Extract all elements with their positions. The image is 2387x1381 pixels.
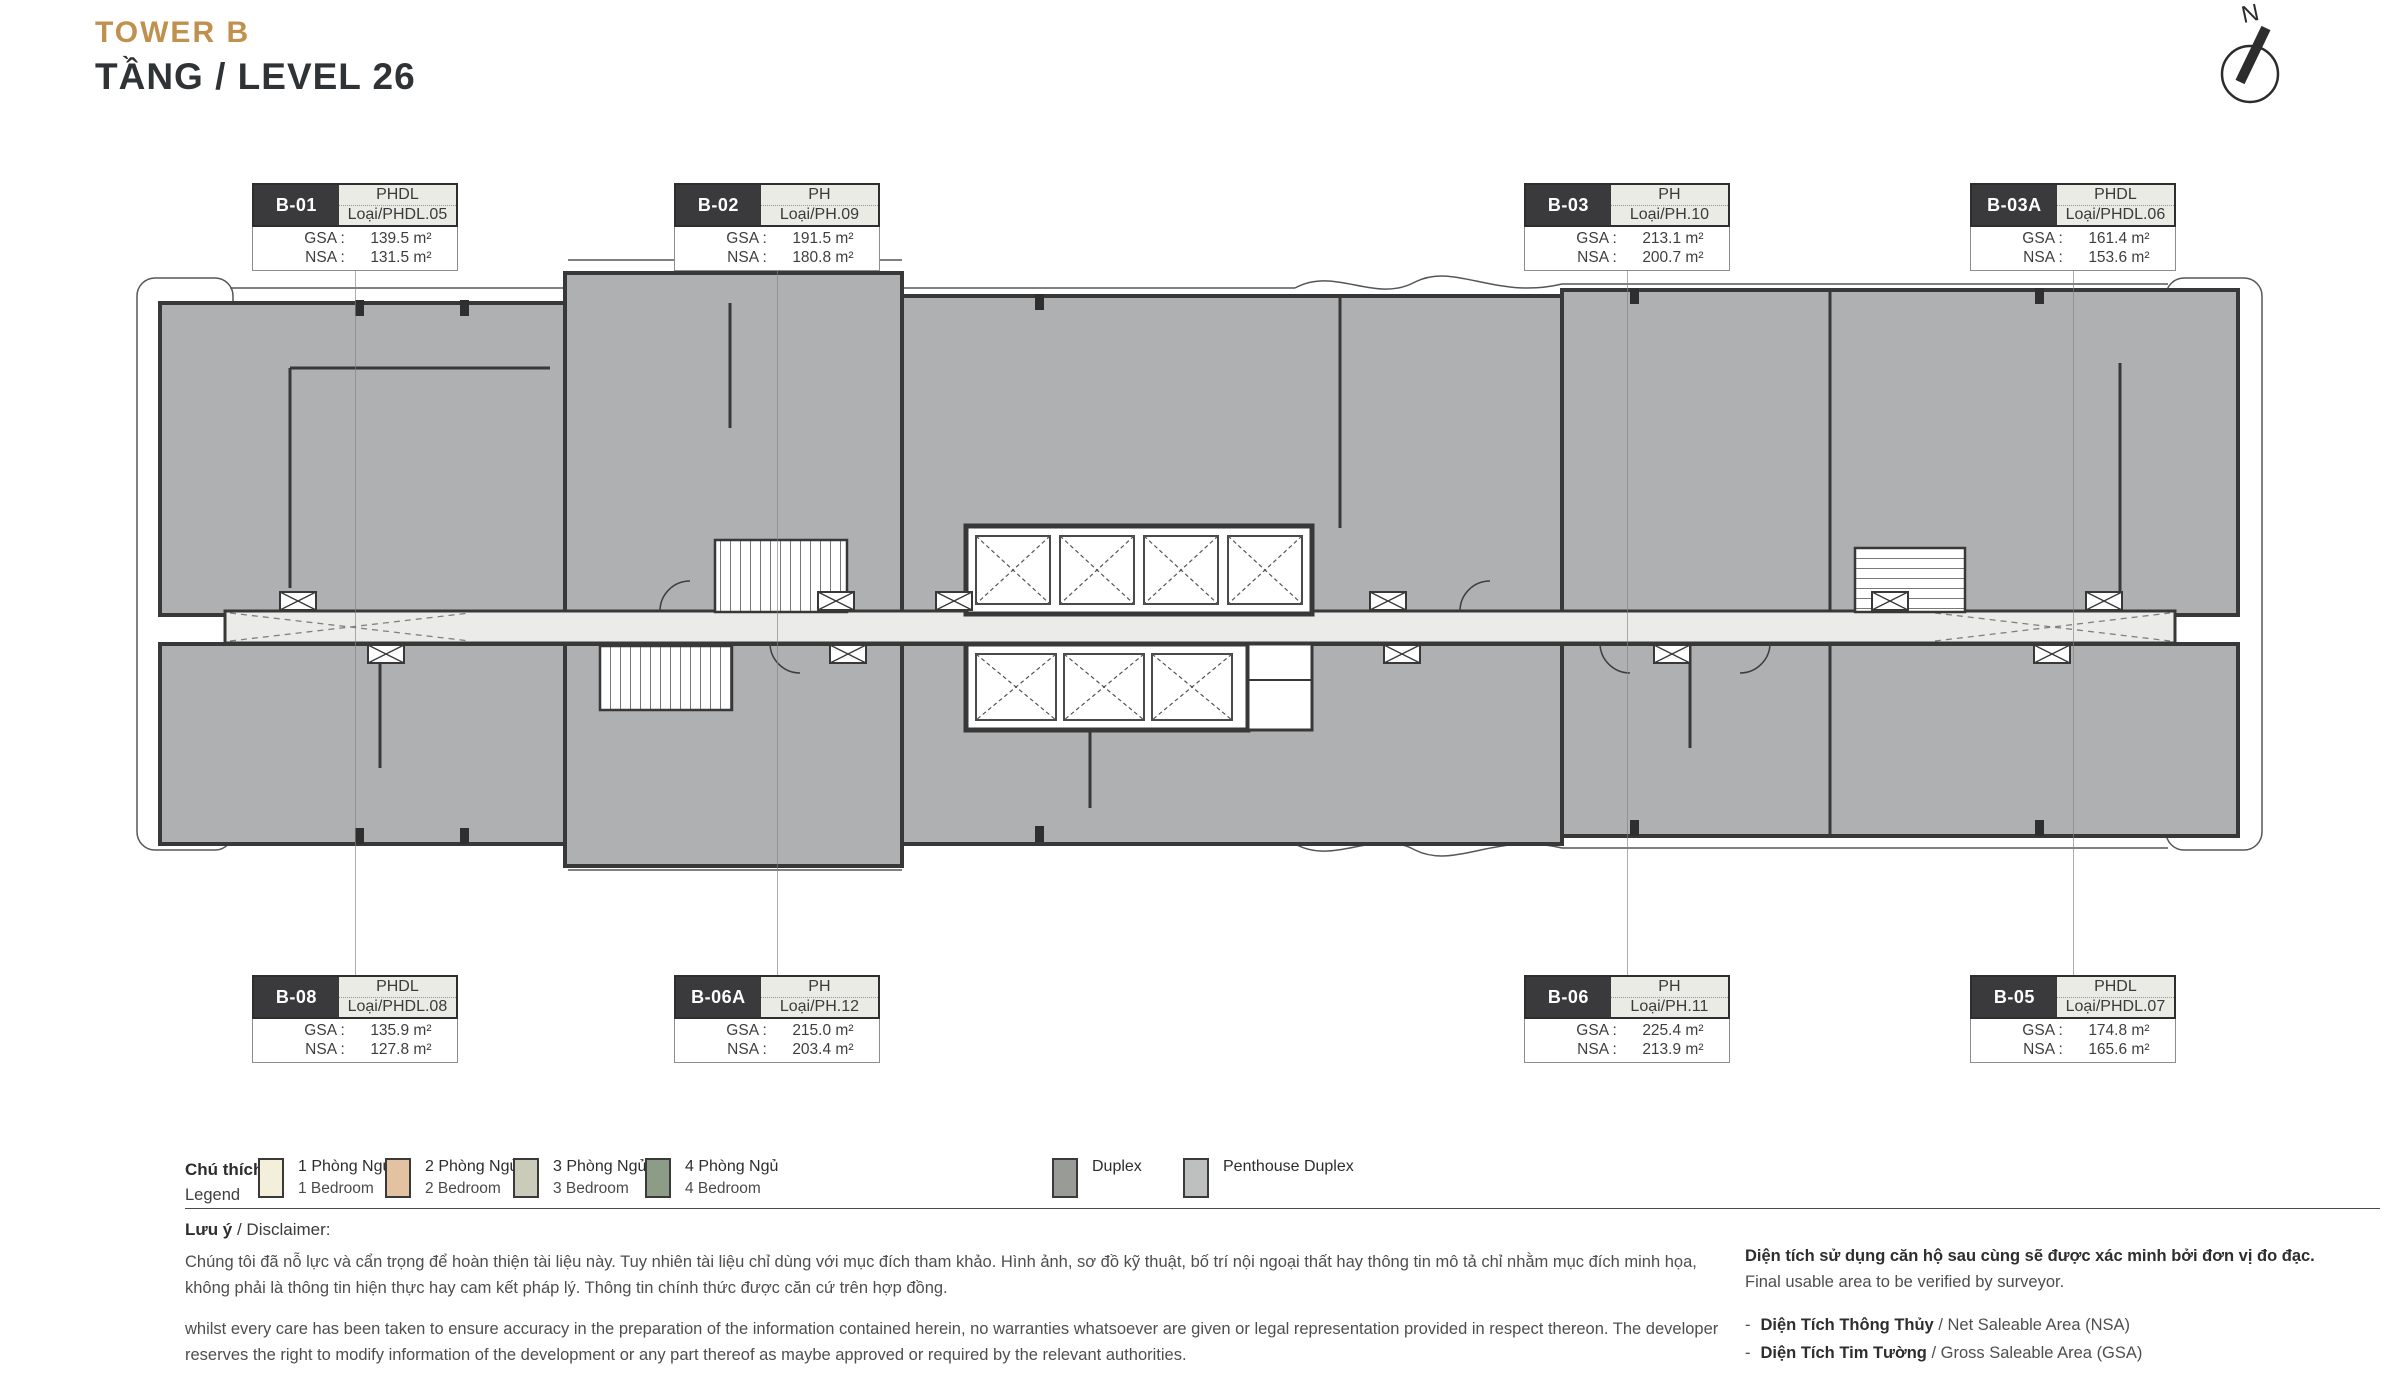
bullet-vi: Diện Tích Tim Tường [1761,1344,1927,1362]
unit-type: PH [761,185,878,206]
legend-title: Chú thích Legend [185,1160,263,1205]
legend-swatch-penthouse-duplex [1183,1158,1209,1198]
unit-type-detail: Loại/PH.12 [761,998,878,1018]
legend-label-en: 4 Bedroom [685,1180,778,1198]
gsa-value: 213.1 m² [1617,230,1729,248]
nsa-value: 203.4 m² [767,1041,879,1059]
gsa-label: GSA : [1971,230,2063,248]
unit-type-detail: Loại/PHDL.07 [2057,998,2174,1018]
leader-line [355,267,356,975]
unit-type-detail: Loại/PHDL.05 [339,206,456,226]
unit-type-detail: Loại/PH.09 [761,206,878,226]
legend-label-en: 2 Bedroom [425,1180,518,1198]
unit-card-b01: B-01 PHDL Loại/PHDL.05 GSA :139.5 m² NSA… [252,183,458,271]
nsa-value: 165.6 m² [2063,1041,2175,1059]
gsa-value: 215.0 m² [767,1022,879,1040]
unit-code: B-06A [676,977,761,1017]
unit-card-b08: B-08 PHDL Loại/PHDL.08 GSA :135.9 m² NSA… [252,975,458,1063]
nsa-value: 153.6 m² [2063,249,2175,267]
gsa-label: GSA : [675,1022,767,1040]
unit-code: B-03A [1972,185,2057,225]
legend-label-vi: Penthouse Duplex [1223,1158,1354,1176]
north-arrow-icon: N [2198,2,2308,129]
gsa-label: GSA : [1525,230,1617,248]
nsa-value: 180.8 m² [767,249,879,267]
disclaimer-title-vi: Lưu ý [185,1220,232,1239]
legend-item-4br: 4 Phòng Ngủ4 Bedroom [645,1158,778,1198]
nsa-label: NSA : [253,1041,345,1059]
legend-item-2br: 2 Phòng Ngủ2 Bedroom [385,1158,518,1198]
nsa-value: 200.7 m² [1617,249,1729,267]
north-label: N [2239,2,2262,29]
leader-line [2073,267,2074,975]
unit-type: PHDL [2057,185,2174,206]
page-title: TOWER B TẦNG / LEVEL 26 [95,16,416,98]
unit-code: B-01 [254,185,339,225]
gsa-value: 191.5 m² [767,230,879,248]
disclaimer-block: Lưu ý / Disclaimer: Chúng tôi đã nỗ lực … [185,1220,1720,1369]
unit-code: B-08 [254,977,339,1017]
nsa-value: 131.5 m² [345,249,457,267]
unit-type: PH [1611,977,1728,998]
legend-item-penthouse-duplex: Penthouse Duplex [1183,1158,1354,1198]
legend-swatch-1br [258,1158,284,1198]
nsa-label: NSA : [675,1041,767,1059]
nsa-label: NSA : [1525,249,1617,267]
legend-label-vi: 2 Phòng Ngủ [425,1158,518,1176]
floorplan-sheet: TOWER B TẦNG / LEVEL 26 N [0,0,2387,1381]
unit-code: B-06 [1526,977,1611,1017]
gsa-label: GSA : [253,230,345,248]
legend-item-3br: 3 Phòng Ngủ3 Bedroom [513,1158,646,1198]
unit-card-b06a: B-06A PH Loại/PH.12 GSA :215.0 m² NSA :2… [674,975,880,1063]
gsa-label: GSA : [675,230,767,248]
area-note-bullet-gsa: -Diện Tích Tim Tường / Gross Saleable Ar… [1745,1340,2380,1366]
legend-label-en: 3 Bedroom [553,1180,646,1198]
unit-type: PH [761,977,878,998]
gsa-label: GSA : [253,1022,345,1040]
legend-label-vi: 3 Phòng Ngủ [553,1158,646,1176]
legend-swatch-duplex [1052,1158,1078,1198]
gsa-value: 174.8 m² [2063,1022,2175,1040]
level-title: TẦNG / LEVEL 26 [95,56,416,98]
unit-code: B-05 [1972,977,2057,1017]
nsa-label: NSA : [253,249,345,267]
unit-type-detail: Loại/PH.11 [1611,998,1728,1018]
disclaimer-paragraph-en: whilst every care has been taken to ensu… [185,1316,1720,1369]
gsa-value: 135.9 m² [345,1022,457,1040]
unit-card-b03a: B-03A PHDL Loại/PHDL.06 GSA :161.4 m² NS… [1970,183,2176,271]
bullet-dash: - [1745,1344,1751,1362]
legend-label-vi: Duplex [1092,1158,1142,1176]
legend-title-en: Legend [185,1186,263,1205]
unit-card-b02: B-02 PH Loại/PH.09 GSA :191.5 m² NSA :18… [674,183,880,271]
floor-plan [130,248,2275,876]
area-note-vi: Diện tích sử dụng căn hộ sau cùng sẽ đượ… [1745,1243,2380,1269]
nsa-value: 127.8 m² [345,1041,457,1059]
leader-line [777,267,778,975]
bullet-dash: - [1745,1316,1751,1334]
nsa-value: 213.9 m² [1617,1041,1729,1059]
gsa-value: 161.4 m² [2063,230,2175,248]
unit-card-b05: B-05 PHDL Loại/PHDL.07 GSA :174.8 m² NSA… [1970,975,2176,1063]
unit-code: B-02 [676,185,761,225]
disclaimer-paragraph-vi: Chúng tôi đã nỗ lực và cẩn trọng để hoàn… [185,1249,1720,1302]
unit-type-detail: Loại/PHDL.06 [2057,206,2174,226]
area-note-bullet-nsa: -Diện Tích Thông Thủy / Net Saleable Are… [1745,1312,2380,1338]
tower-title: TOWER B [95,16,416,50]
bullet-en: / Net Saleable Area (NSA) [1934,1316,2130,1334]
legend-title-vi: Chú thích [185,1160,263,1180]
nsa-label: NSA : [1525,1041,1617,1059]
unit-code: B-03 [1526,185,1611,225]
unit-type: PHDL [339,977,456,998]
leader-line [1627,267,1628,975]
legend-swatch-3br [513,1158,539,1198]
gsa-value: 225.4 m² [1617,1022,1729,1040]
unit-card-b06: B-06 PH Loại/PH.11 GSA :225.4 m² NSA :21… [1524,975,1730,1063]
gsa-label: GSA : [1971,1022,2063,1040]
bullet-en: / Gross Saleable Area (GSA) [1927,1344,2143,1362]
unit-card-b03: B-03 PH Loại/PH.10 GSA :213.1 m² NSA :20… [1524,183,1730,271]
gsa-value: 139.5 m² [345,230,457,248]
unit-type-detail: Loại/PH.10 [1611,206,1728,226]
area-note-en: Final usable area to be verified by surv… [1745,1269,2380,1295]
unit-type: PH [1611,185,1728,206]
legend-label-vi: 1 Phòng Ngủ [298,1158,391,1176]
area-note-block: Diện tích sử dụng căn hộ sau cùng sẽ đượ… [1745,1243,2380,1367]
legend-item-duplex: Duplex [1052,1158,1142,1198]
nsa-label: NSA : [675,249,767,267]
gsa-label: GSA : [1525,1022,1617,1040]
legend-swatch-4br [645,1158,671,1198]
legend-item-1br: 1 Phòng Ngủ1 Bedroom [258,1158,391,1198]
nsa-label: NSA : [1971,249,2063,267]
unit-type: PHDL [2057,977,2174,998]
legend-label-en: 1 Bedroom [298,1180,391,1198]
section-divider [185,1208,2380,1209]
legend-label-vi: 4 Phòng Ngủ [685,1158,778,1176]
legend-swatch-2br [385,1158,411,1198]
unit-type-detail: Loại/PHDL.08 [339,998,456,1018]
nsa-label: NSA : [1971,1041,2063,1059]
unit-type: PHDL [339,185,456,206]
bullet-vi: Diện Tích Thông Thủy [1761,1316,1934,1334]
disclaimer-title-en: / Disclaimer: [232,1220,330,1239]
disclaimer-title: Lưu ý / Disclaimer: [185,1220,1720,1240]
